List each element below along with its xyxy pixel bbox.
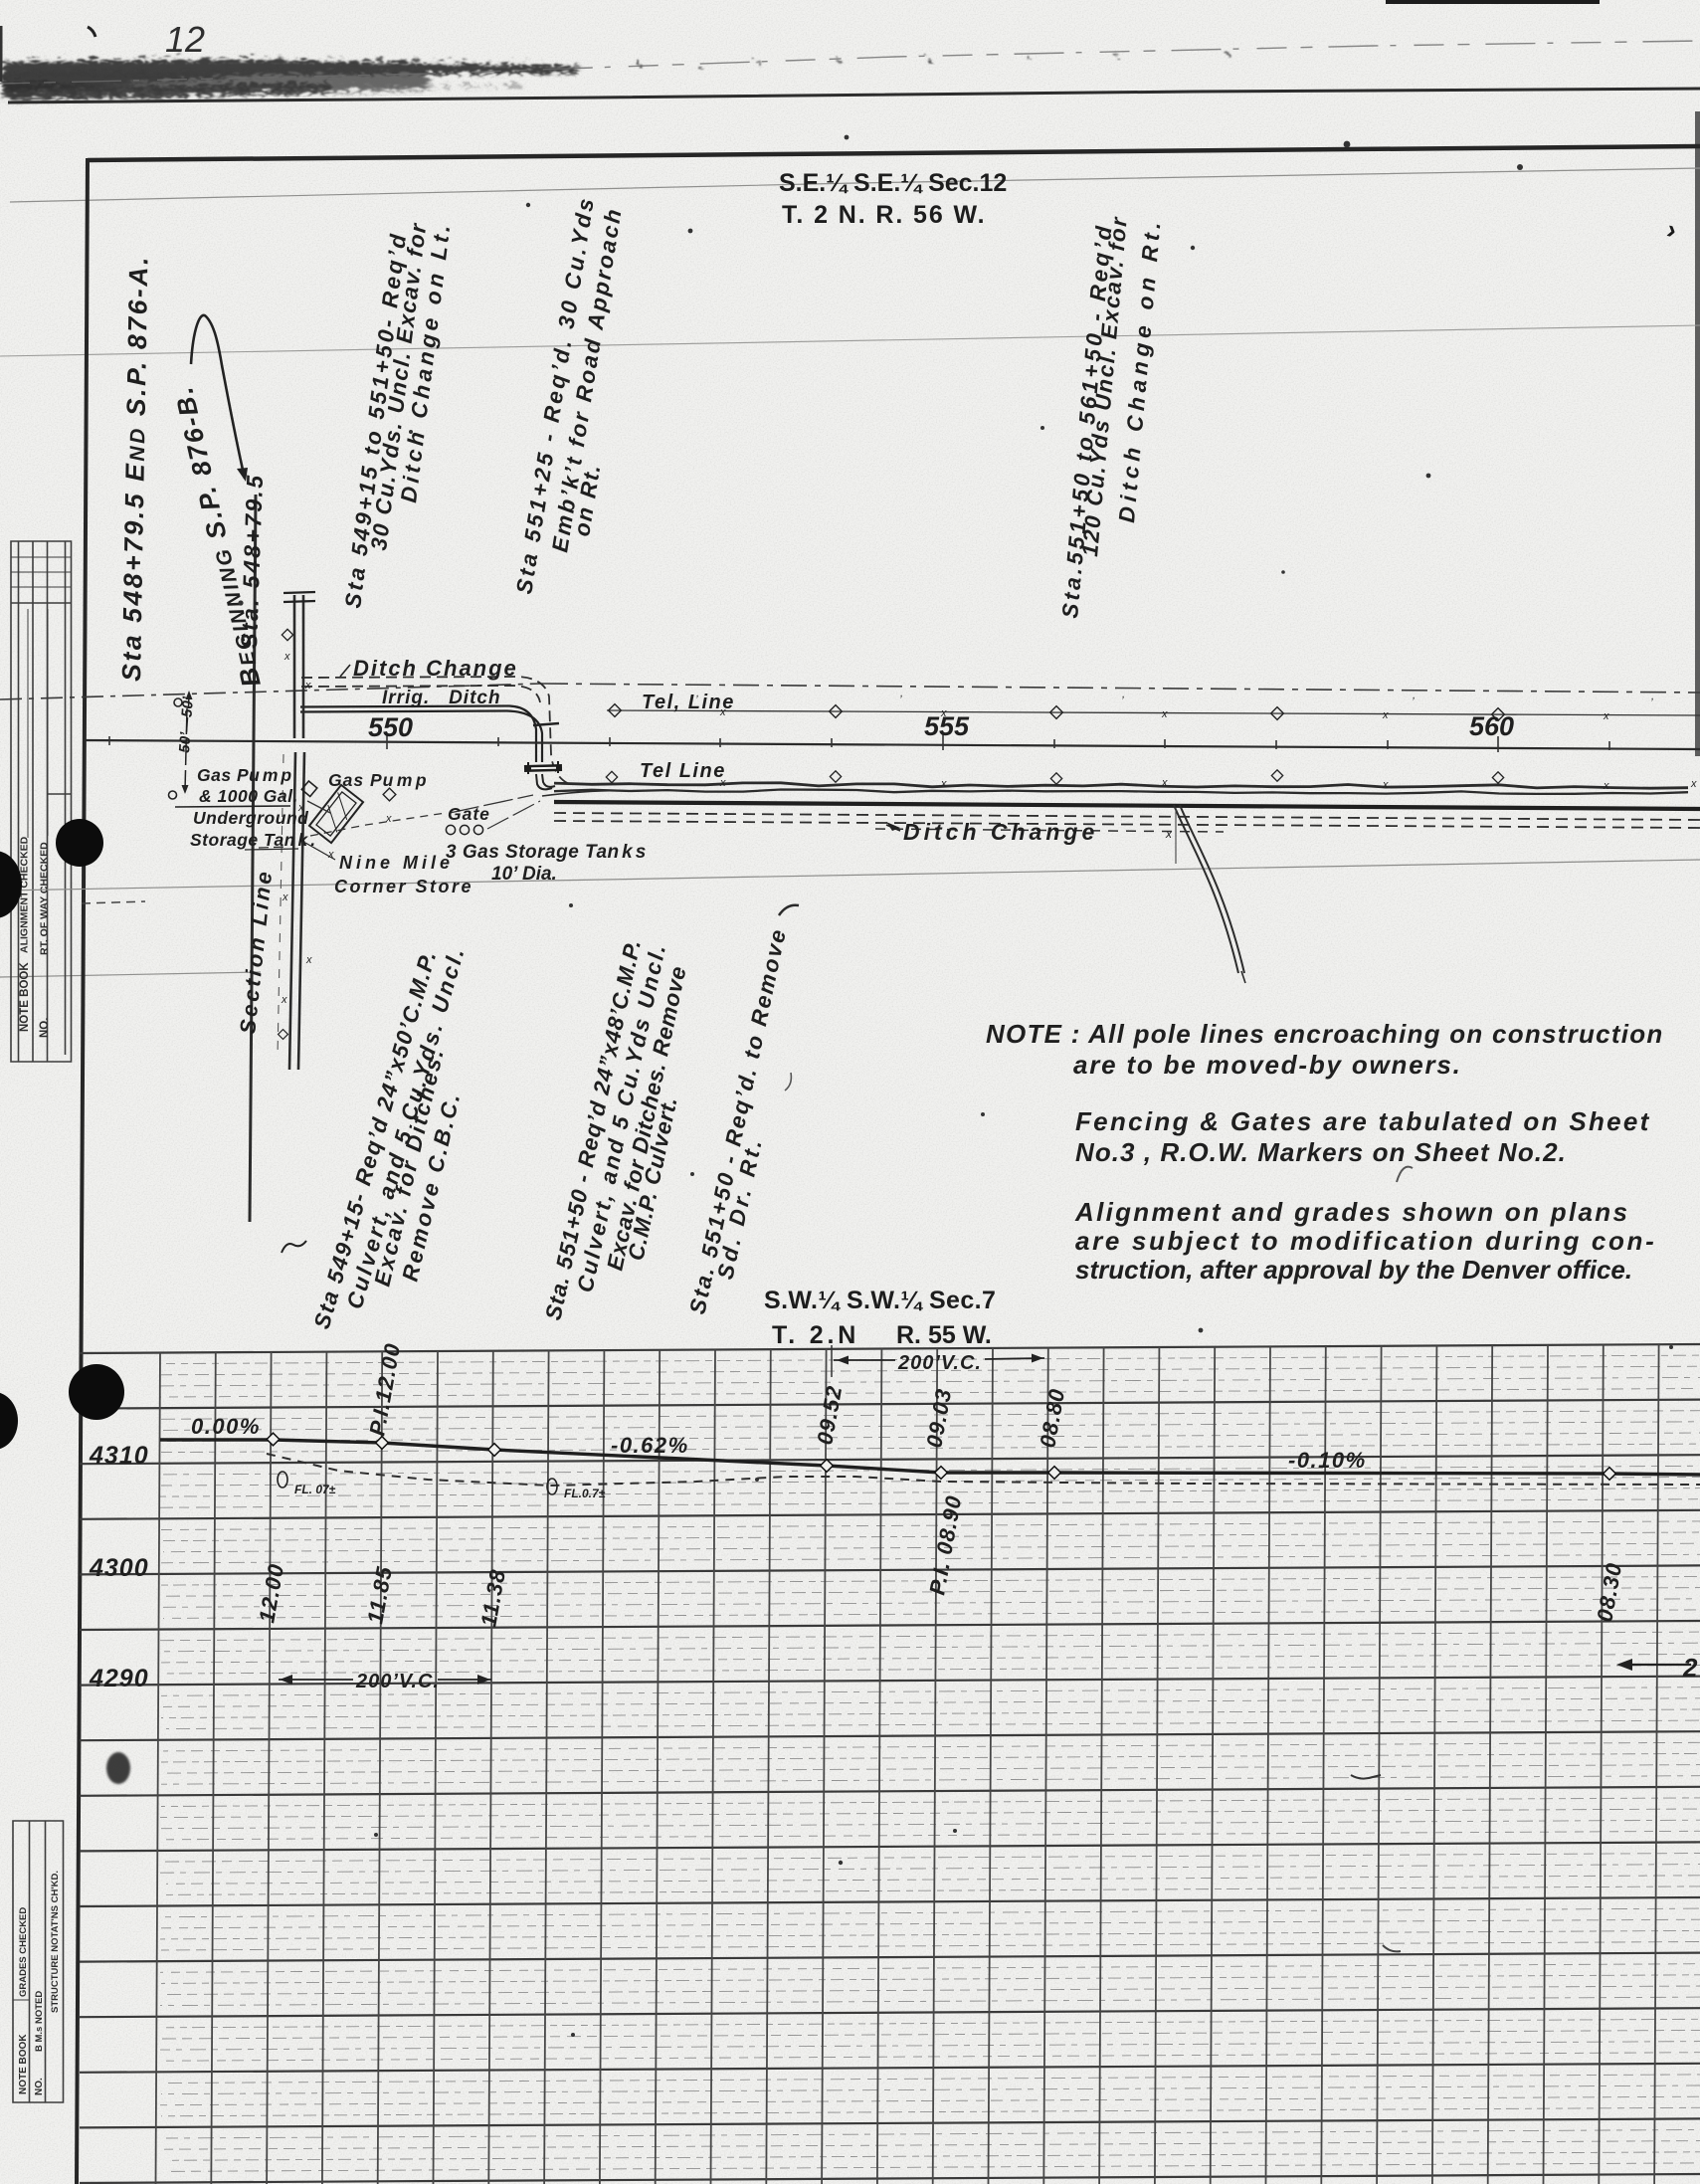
svg-text:NO.: NO. <box>39 1018 51 1038</box>
svg-text:are subject to modification du: are subject to modification during con- <box>1075 1226 1656 1256</box>
svg-text:560: 560 <box>1469 711 1514 741</box>
svg-text:10’ Dia.: 10’ Dia. <box>491 864 557 885</box>
svg-text:12: 12 <box>165 19 205 60</box>
svg-text:Alignment and grades shown on: Alignment and grades shown on plans <box>1074 1197 1629 1227</box>
svg-text:& 1000 Gal.: & 1000 Gal. <box>199 786 298 806</box>
svg-text:Storage Tank.: Storage Tank. <box>190 830 318 850</box>
svg-text:4310: 4310 <box>89 1442 149 1470</box>
svg-text:Ditch Change: Ditch Change <box>353 656 518 681</box>
svg-text:x: x <box>1690 778 1697 790</box>
svg-text:4300: 4300 <box>89 1554 149 1582</box>
svg-text:-0.10%: -0.10% <box>1288 1448 1367 1473</box>
svg-text:T. 2.N: T. 2.N <box>772 1321 859 1349</box>
svg-text:-0.62%: -0.62% <box>611 1433 689 1458</box>
svg-text:FL. 07±: FL. 07± <box>294 1483 336 1496</box>
svg-text:,: , <box>1122 689 1125 700</box>
svg-text:x: x <box>1603 780 1609 792</box>
svg-text:R. 55 W.: R. 55 W. <box>896 1321 992 1349</box>
svg-text:Irrig. Ditch: Irrig. Ditch <box>382 688 501 708</box>
svg-text:x: x <box>385 813 392 825</box>
svg-text:x: x <box>305 954 312 966</box>
svg-text:x: x <box>281 994 287 1006</box>
svg-text:550: 550 <box>368 712 413 742</box>
svg-text:GRADES CHECKED: GRADES CHECKED <box>18 1907 29 1997</box>
svg-text:NOTE BOOK: NOTE BOOK <box>18 2034 29 2094</box>
svg-text:NOTE : All pole lines encroach: NOTE : All pole lines encroaching on con… <box>986 1019 1663 1049</box>
svg-text:Tel, Line: Tel, Line <box>642 692 735 713</box>
svg-text:struction, after approval by t: struction, after approval by the Denver … <box>1075 1255 1632 1285</box>
svg-text:x: x <box>283 651 290 663</box>
svg-text:3 Gas Storage Tanks: 3 Gas Storage Tanks <box>446 842 649 863</box>
svg-text:STRUCTURE NOTAT'NS CH'KD.: STRUCTURE NOTAT'NS CH'KD. <box>50 1871 61 2013</box>
svg-text:FL.0.7±: FL.0.7± <box>564 1487 606 1500</box>
svg-text:Corner Store: Corner Store <box>334 877 473 896</box>
svg-text:x: x <box>1603 710 1609 722</box>
svg-text:No.3 , R.O.W. Markers on Sheet: No.3 , R.O.W. Markers on Sheet No.2. <box>1075 1137 1567 1167</box>
svg-text:Nine Mile: Nine Mile <box>339 853 454 873</box>
svg-text:x: x <box>1161 777 1168 789</box>
svg-text:x: x <box>1161 708 1168 720</box>
svg-text:NOTE BOOK: NOTE BOOK <box>19 962 31 1032</box>
svg-text:200’V.C.: 200’V.C. <box>897 1352 982 1374</box>
svg-text:Gate: Gate <box>448 804 490 824</box>
svg-text:are to be moved-by owners.: are to be moved-by owners. <box>1073 1050 1462 1080</box>
svg-text:Fencing & Gates are tabulated: Fencing & Gates are tabulated on Sheet <box>1075 1106 1651 1136</box>
svg-text:S.E.¼ S.E.¼ Sec.12: S.E.¼ S.E.¼ Sec.12 <box>779 169 1007 197</box>
svg-text:B M.s NOTED: B M.s NOTED <box>34 1991 45 2052</box>
svg-text:555: 555 <box>924 711 970 741</box>
svg-text:x: x <box>304 680 311 692</box>
svg-text:Gas Pump: Gas Pump <box>328 770 430 790</box>
svg-text:x: x <box>282 892 288 903</box>
svg-text:x: x <box>297 802 304 814</box>
svg-text:x: x <box>940 778 947 790</box>
svg-text:Tel Line: Tel Line <box>640 760 726 782</box>
svg-text:,: , <box>1651 691 1654 702</box>
svg-text:x: x <box>719 777 726 789</box>
svg-text:RT. OF WAY CHECKED: RT. OF WAY CHECKED <box>39 842 51 955</box>
svg-text:2: 2 <box>1682 1653 1698 1683</box>
svg-text:Ditch Change: Ditch Change <box>903 819 1098 845</box>
svg-text:4290: 4290 <box>89 1665 149 1692</box>
svg-text:x: x <box>1165 827 1173 841</box>
svg-text:x: x <box>1382 709 1389 721</box>
svg-text:NO.: NO. <box>34 2078 45 2095</box>
svg-text:S.W.¼ S.W.¼ Sec.7: S.W.¼ S.W.¼ Sec.7 <box>764 1287 996 1314</box>
svg-text:,: , <box>1413 690 1416 701</box>
svg-text:,: , <box>900 688 903 699</box>
svg-text:200’V.C.: 200’V.C. <box>355 1671 440 1692</box>
svg-text:Underground: Underground <box>193 808 308 828</box>
svg-text:0.00%: 0.00% <box>191 1414 261 1439</box>
svg-text:Gas Pump: Gas Pump <box>197 765 294 785</box>
svg-text:x: x <box>1382 779 1389 791</box>
svg-text:T. 2 N. R. 56 W.: T. 2 N. R. 56 W. <box>782 201 986 229</box>
